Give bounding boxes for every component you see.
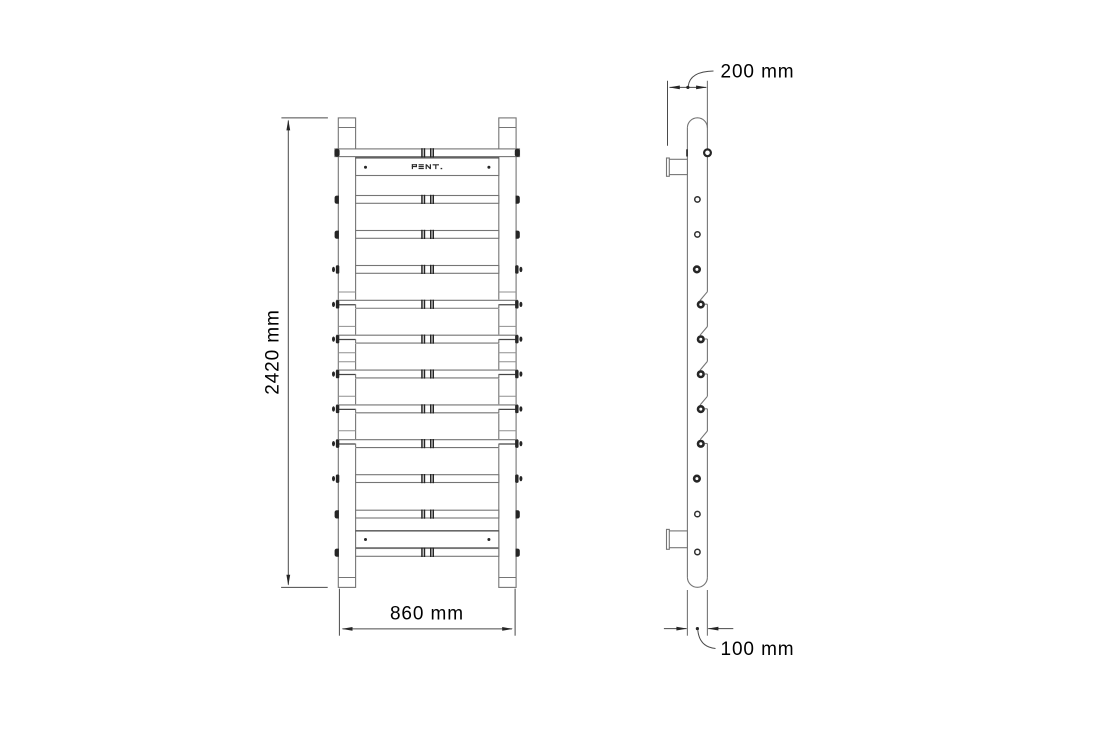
svg-text:2420 mm: 2420 mm [262, 309, 283, 395]
svg-text:200 mm: 200 mm [721, 62, 795, 83]
svg-text:860 mm: 860 mm [390, 604, 464, 625]
svg-text:100 mm: 100 mm [721, 639, 795, 660]
